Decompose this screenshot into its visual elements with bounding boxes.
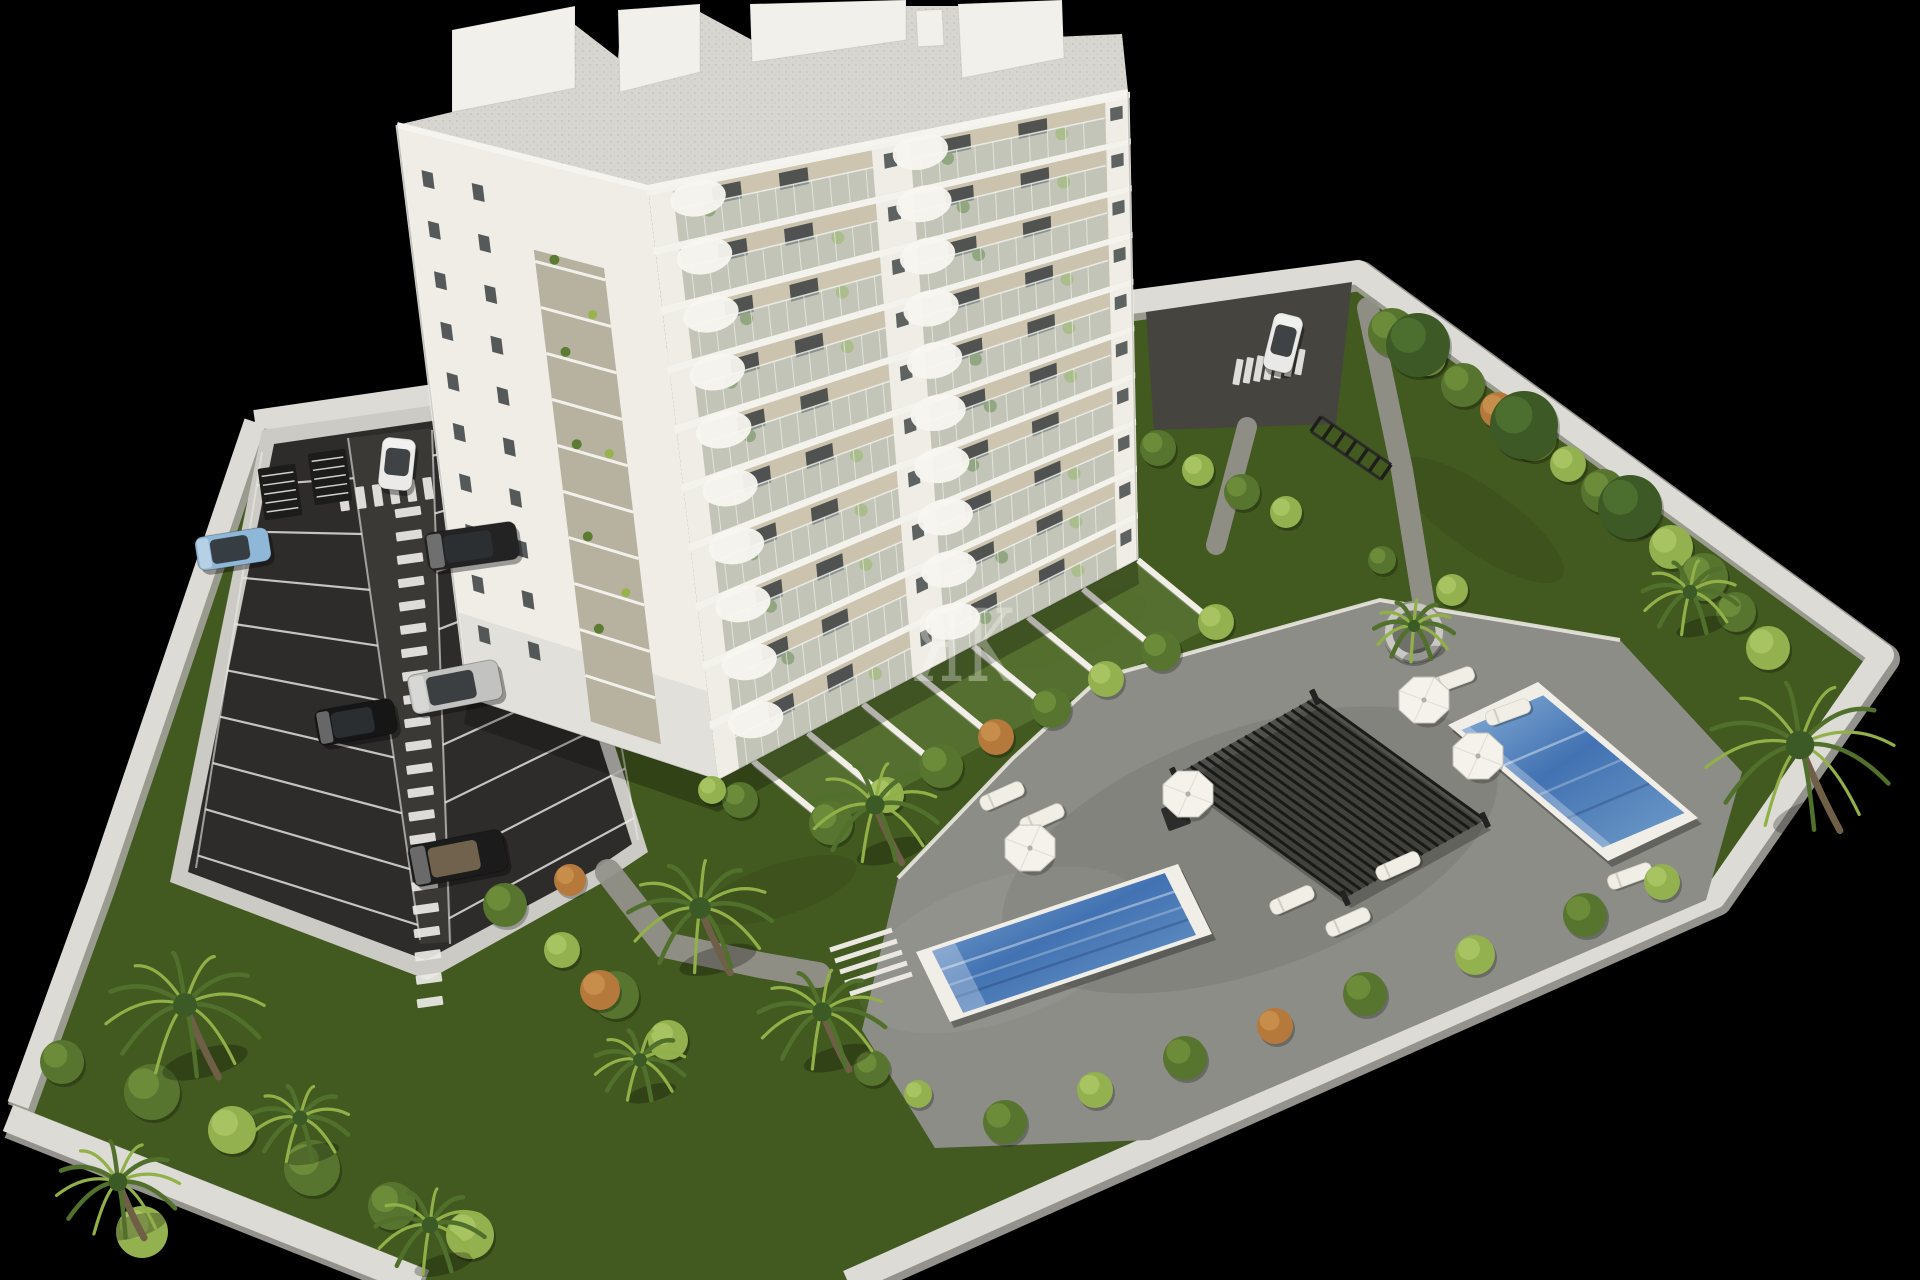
bike-rack [258, 464, 303, 521]
render-stage: ЯK [0, 0, 1920, 1280]
watermark-text: ЯK [912, 588, 1016, 705]
render-canvas: ЯK [0, 0, 1920, 1280]
bike-rack [308, 449, 353, 506]
car [377, 436, 420, 497]
